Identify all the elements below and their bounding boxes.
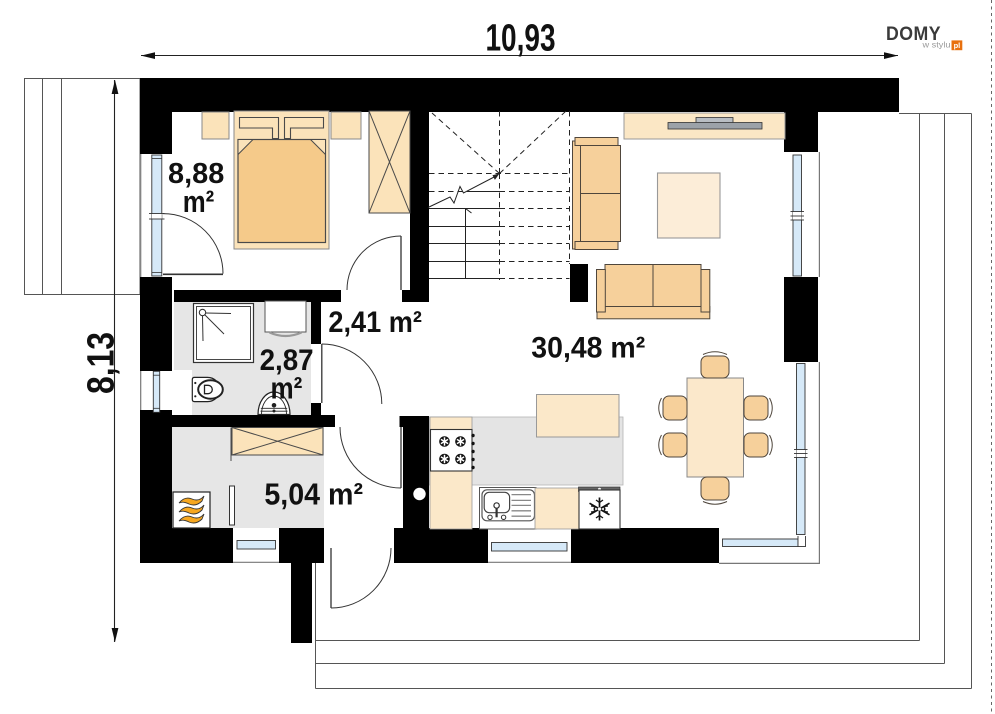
svg-text:m²: m²: [271, 371, 303, 406]
svg-text:pl: pl: [954, 41, 961, 50]
svg-text:8,13: 8,13: [81, 332, 123, 394]
svg-text:2,41 m²: 2,41 m²: [328, 306, 422, 339]
svg-text:30,48 m²: 30,48 m²: [531, 331, 645, 364]
svg-text:5,04 m²: 5,04 m²: [264, 477, 363, 512]
svg-text:m²: m²: [183, 184, 215, 219]
svg-text:10,93: 10,93: [486, 18, 556, 60]
svg-text:w stylu: w stylu: [921, 40, 950, 50]
